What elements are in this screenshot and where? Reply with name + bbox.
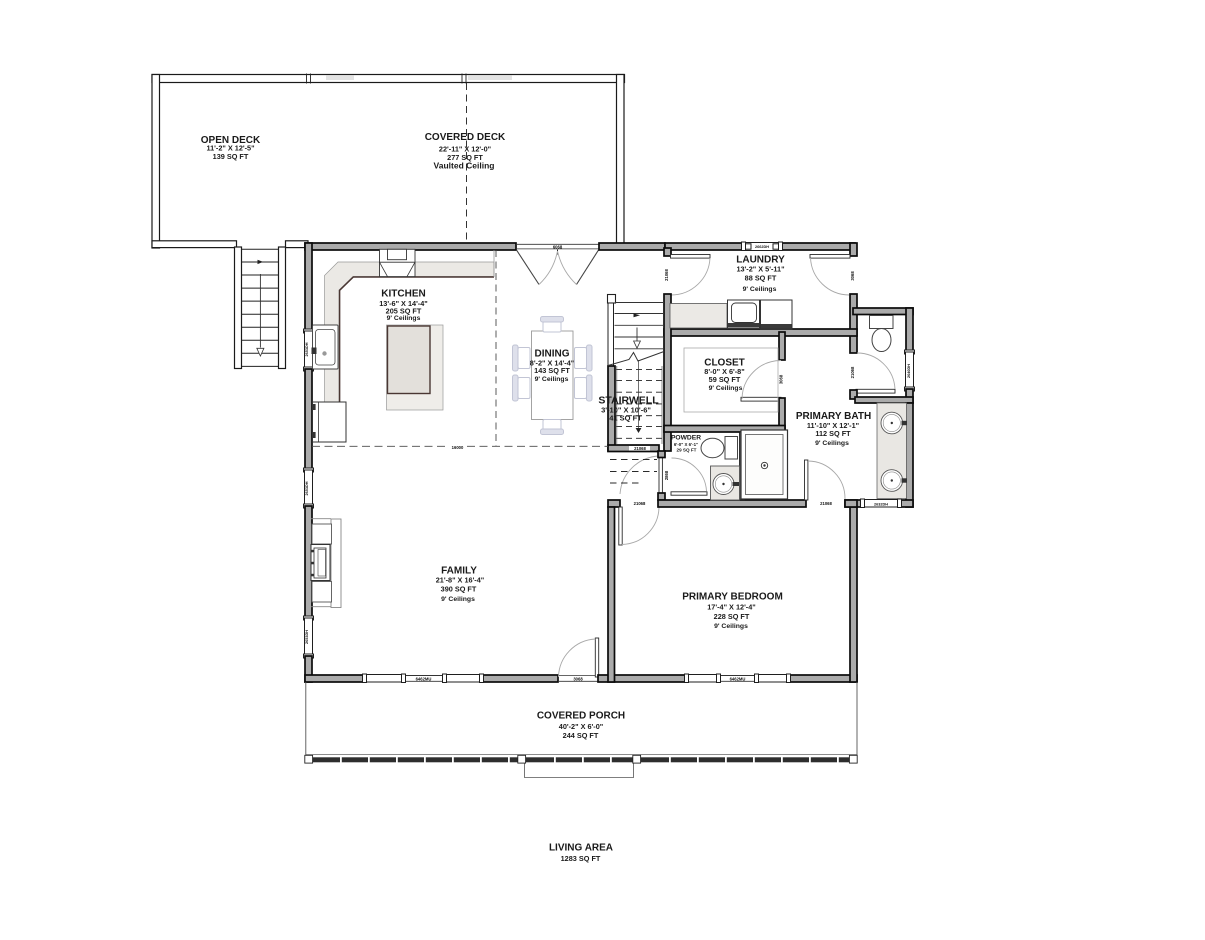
- svg-text:21068: 21068: [634, 501, 646, 506]
- svg-text:13'-2" X 5'-11": 13'-2" X 5'-11": [736, 264, 784, 273]
- svg-text:2868: 2868: [664, 470, 669, 480]
- svg-text:9' Ceilings: 9' Ceilings: [709, 385, 743, 392]
- svg-text:Vaulted Ceiling: Vaulted Ceiling: [434, 161, 495, 171]
- svg-text:16000: 16000: [452, 445, 464, 450]
- svg-text:21068: 21068: [850, 366, 855, 378]
- svg-text:PRIMARY BEDROOM: PRIMARY BEDROOM: [682, 592, 783, 603]
- svg-text:21068: 21068: [634, 446, 646, 451]
- svg-text:139 SQ FT: 139 SQ FT: [213, 152, 249, 161]
- svg-text:3068: 3068: [850, 271, 855, 281]
- svg-text:21068: 21068: [664, 269, 669, 281]
- svg-text:9' Ceilings: 9' Ceilings: [743, 286, 777, 293]
- svg-text:LIVING AREA: LIVING AREA: [549, 843, 613, 854]
- svg-text:3068: 3068: [573, 677, 583, 682]
- svg-text:6'-0" X 6'-1": 6'-0" X 6'-1": [674, 442, 698, 447]
- svg-text:2653DH: 2653DH: [305, 342, 309, 356]
- svg-text:2653DH: 2653DH: [305, 481, 309, 495]
- svg-text:COVERED DECK: COVERED DECK: [425, 132, 506, 143]
- svg-text:6068: 6068: [553, 244, 563, 249]
- svg-text:3068: 3068: [779, 374, 784, 384]
- svg-text:9' Ceilings: 9' Ceilings: [815, 440, 849, 447]
- svg-text:21'-8" X 16'-4": 21'-8" X 16'-4": [436, 576, 485, 585]
- svg-text:9' Ceilings: 9' Ceilings: [387, 315, 421, 322]
- svg-text:2640DH: 2640DH: [907, 364, 911, 378]
- svg-text:21068: 21068: [820, 501, 832, 506]
- svg-text:59 SQ FT: 59 SQ FT: [709, 375, 741, 384]
- svg-text:2662DH: 2662DH: [755, 245, 769, 249]
- svg-text:88 SQ FT: 88 SQ FT: [745, 273, 777, 282]
- svg-text:17'-4" X 12'-4": 17'-4" X 12'-4": [707, 603, 756, 612]
- svg-text:390 SQ FT: 390 SQ FT: [441, 585, 477, 594]
- svg-text:244 SQ FT: 244 SQ FT: [563, 731, 599, 740]
- svg-text:41 SQ FT: 41 SQ FT: [609, 414, 642, 423]
- svg-text:143 SQ FT: 143 SQ FT: [534, 366, 570, 375]
- svg-text:POWDER: POWDER: [671, 435, 701, 442]
- svg-text:9' Ceilings: 9' Ceilings: [441, 596, 475, 603]
- svg-text:2632DH: 2632DH: [874, 502, 888, 506]
- svg-text:29 SQ FT: 29 SQ FT: [677, 447, 697, 452]
- svg-text:9' Ceilings: 9' Ceilings: [714, 623, 748, 630]
- svg-text:6462MU: 6462MU: [730, 677, 746, 682]
- svg-text:9' Ceilings: 9' Ceilings: [535, 376, 569, 383]
- svg-text:40'-2" X 6'-0": 40'-2" X 6'-0": [559, 722, 603, 731]
- svg-text:1283 SQ FT: 1283 SQ FT: [561, 854, 601, 863]
- svg-text:228 SQ FT: 228 SQ FT: [714, 612, 750, 621]
- svg-text:6462MU: 6462MU: [416, 677, 432, 682]
- svg-text:COVERED PORCH: COVERED PORCH: [537, 711, 625, 722]
- svg-text:2653DH: 2653DH: [305, 630, 309, 644]
- svg-text:112 SQ FT: 112 SQ FT: [815, 429, 851, 438]
